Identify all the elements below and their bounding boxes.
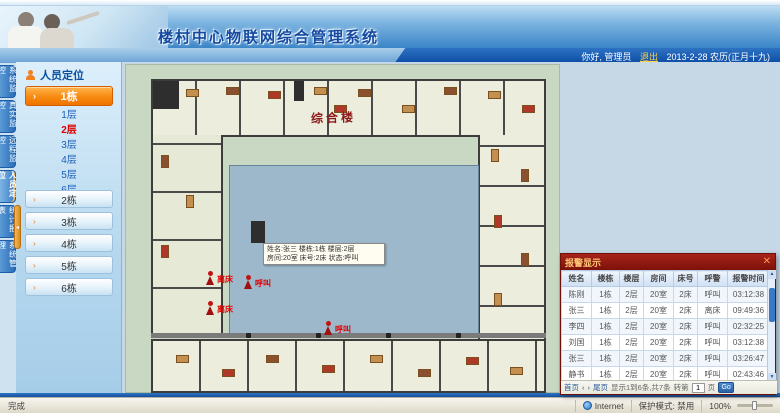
people-icon — [26, 70, 36, 80]
building-button-label: 2栋 — [61, 192, 77, 207]
building-button-1[interactable]: › 1栋 — [25, 86, 113, 106]
floor-item-2[interactable]: 2层 — [16, 123, 122, 138]
plan-building-label: 综合楼 — [311, 108, 357, 127]
sidebar-collapse-handle[interactable]: ◂ — [14, 205, 21, 249]
chevron-right-icon: › — [33, 91, 36, 101]
plan-furniture — [491, 149, 499, 162]
zoom-level: 100% — [709, 401, 731, 411]
plan-furniture — [186, 195, 194, 208]
pager-go-button[interactable]: Go — [718, 382, 734, 393]
status-text: 完成 — [0, 400, 575, 412]
zoom-slider-knob[interactable] — [752, 401, 757, 410]
pager-goto-label: 转第 — [674, 382, 689, 393]
plan-furniture — [402, 105, 415, 113]
building-button-label: 6栋 — [61, 280, 77, 295]
col-bed: 床号 — [674, 271, 698, 287]
date-text: 2013-2-28 农历(正月十九) — [666, 52, 770, 62]
plan-furniture — [176, 355, 189, 363]
alarm-popup-title: 报警显示 — [565, 256, 601, 269]
page-number-input[interactable] — [692, 383, 705, 393]
plan-stairwell — [251, 221, 265, 243]
plan-furniture — [488, 91, 501, 99]
globe-icon — [583, 401, 592, 410]
floor-item-1[interactable]: 1层 — [16, 108, 122, 123]
plan-furniture — [521, 169, 529, 182]
alarm-marker-label: 离床 — [217, 304, 233, 315]
pager-prev[interactable]: ‹ — [582, 383, 585, 392]
strip-diagonal — [0, 48, 405, 63]
pager-unit: 页 — [708, 382, 716, 393]
zoom-slider[interactable] — [737, 404, 773, 407]
chevron-right-icon: › — [33, 261, 36, 270]
popup-scrollbar[interactable]: ▲ ▼ — [767, 270, 775, 382]
plan-furniture — [322, 365, 335, 373]
plan-stairwell — [153, 81, 179, 109]
person-alarm-icon — [206, 301, 215, 315]
table-row[interactable]: 陈刚1栋2层20室2床呼叫03:12:38 — [562, 287, 770, 303]
plan-rooms-bottom — [151, 339, 546, 393]
plan-furniture — [466, 357, 479, 365]
panel-title: 人员定位 — [40, 67, 84, 83]
plan-furniture — [494, 215, 502, 228]
building-button-label: 1栋 — [60, 88, 77, 104]
app-banner: 楼村中心物联网综合管理系统 — [0, 6, 780, 48]
user-greeting: 你好, 管理员 — [581, 52, 631, 62]
plan-column — [456, 333, 461, 338]
building-button-2[interactable]: › 2栋 — [25, 190, 113, 208]
status-bar: 完成 Internet 保护模式: 禁用 100% — [0, 397, 780, 413]
building-button-6[interactable]: › 6栋 — [25, 278, 113, 296]
plan-furniture — [494, 293, 502, 306]
tab-live-monitor[interactable]: 真实监控 — [0, 100, 16, 133]
col-name: 姓名 — [562, 271, 592, 287]
building-button-3[interactable]: › 3栋 — [25, 212, 113, 230]
pager-info: 显示1到6条,共7条 — [611, 382, 671, 393]
close-icon[interactable]: ✕ — [763, 257, 771, 267]
plan-furniture — [370, 355, 383, 363]
alarm-marker-4[interactable]: 呼叫 — [324, 321, 364, 337]
pager-next[interactable]: › — [588, 383, 591, 392]
person-tooltip: 姓名:张三 楼栋:1栋 楼层:2层 房间:20室 床号:2床 状态:呼叫 — [263, 243, 385, 265]
alarm-marker-2[interactable]: 呼叫 — [244, 275, 284, 291]
protected-mode-label: 保护模式: 禁用 — [631, 400, 702, 412]
plan-column — [316, 333, 321, 338]
sidebar: 人员定位 › 1栋 1层 2层 3层 4层 5层 6层 › 2栋 › 3栋 › … — [16, 62, 122, 393]
scroll-up-icon[interactable]: ▲ — [768, 270, 776, 279]
table-row[interactable]: 张三1栋2层20室2床离床09:49:36 — [562, 303, 770, 319]
tooltip-line2: 房间:20室 床号:2床 状态:呼叫 — [267, 254, 381, 263]
alarm-marker-label: 呼叫 — [335, 324, 351, 335]
alarm-table: 姓名 楼栋 楼层 房间 床号 呼警 报警时间 陈刚1栋2层20室2床呼叫03:1… — [561, 270, 770, 383]
building-button-5[interactable]: › 5栋 — [25, 256, 113, 274]
alarm-popup-titlebar[interactable]: 报警显示 ✕ — [561, 254, 775, 270]
person-alarm-icon — [206, 271, 215, 285]
plan-furniture — [444, 87, 457, 95]
chevron-right-icon: › — [33, 217, 36, 226]
plan-furniture — [266, 355, 279, 363]
table-row[interactable]: 刘国1栋2层20室2床呼叫03:12:38 — [562, 335, 770, 351]
tab-personnel-location[interactable]: 人员定位 — [0, 170, 16, 203]
plan-furniture — [521, 253, 529, 266]
plan-wing-right — [478, 135, 546, 347]
floor-list: 1层 2层 3层 4层 5层 6层 — [16, 108, 122, 198]
pager-first[interactable]: 首页 — [564, 382, 579, 393]
floor-item-3[interactable]: 3层 — [16, 138, 122, 153]
building-button-label: 3栋 — [61, 214, 77, 229]
alarm-marker-label: 离床 — [217, 274, 233, 285]
plan-furniture — [161, 155, 169, 168]
plan-column — [386, 333, 391, 338]
zone-label: Internet — [595, 401, 624, 411]
user-strip: 你好, 管理员 退出 2013-2-28 农历(正月十九) — [0, 48, 780, 63]
tooltip-line1: 姓名:张三 楼栋:1栋 楼层:2层 — [267, 245, 381, 254]
plan-furniture — [226, 87, 239, 95]
plan-stairwell — [294, 81, 304, 101]
floorplan-canvas[interactable]: 综合楼 离床 呼叫 离床 呼叫 姓名:张三 楼栋:1栋 楼层:2层 房间:20室… — [125, 64, 560, 393]
col-alarm-time: 报警时间 — [728, 271, 770, 287]
popup-pager: 首页 ‹ › 尾页 显示1到6条,共7条 转第 页 Go — [561, 380, 777, 394]
plan-furniture — [522, 105, 535, 113]
table-row[interactable]: 张三1栋2层20室2床呼叫03:26:47 — [562, 351, 770, 367]
banner-photo — [0, 6, 168, 48]
plan-furniture — [161, 245, 169, 258]
tab-system-monitor[interactable]: 系统监控 — [0, 65, 16, 98]
app-title: 楼村中心物联网综合管理系统 — [158, 26, 379, 47]
alarm-marker-label: 呼叫 — [255, 278, 271, 289]
photo-silhouette — [8, 26, 44, 48]
logout-link[interactable]: 退出 — [640, 52, 658, 62]
col-floor: 楼层 — [620, 271, 644, 287]
plan-furniture — [418, 369, 431, 377]
building-button-4[interactable]: › 4栋 — [25, 234, 113, 252]
table-row[interactable]: 李四1栋2层20室2床呼叫02:32:25 — [562, 319, 770, 335]
chevron-right-icon: › — [33, 195, 36, 204]
plan-furniture — [268, 91, 281, 99]
floor-item-5[interactable]: 5层 — [16, 168, 122, 183]
building-button-label: 5栋 — [61, 258, 77, 273]
plan-furniture — [314, 87, 327, 95]
pager-last[interactable]: 尾页 — [593, 382, 608, 393]
alarm-table-header: 姓名 楼栋 楼层 房间 床号 呼警 报警时间 — [562, 271, 770, 287]
person-alarm-icon — [244, 275, 253, 289]
chevron-right-icon: › — [33, 283, 36, 292]
chevron-right-icon: › — [33, 239, 36, 248]
floor-item-4[interactable]: 4层 — [16, 153, 122, 168]
tab-remote-monitor[interactable]: 远程监控 — [0, 135, 16, 168]
col-room: 房间 — [644, 271, 674, 287]
person-alarm-icon — [324, 321, 333, 335]
photo-silhouette — [40, 28, 74, 48]
col-building: 楼栋 — [592, 271, 620, 287]
plan-furniture — [222, 369, 235, 377]
alarm-marker-3[interactable]: 离床 — [206, 301, 246, 317]
photo-silhouette — [66, 11, 100, 25]
alarm-popup: 报警显示 ✕ 姓名 楼栋 楼层 房间 床号 呼警 报警时间 陈刚1栋2层20室2… — [560, 253, 776, 395]
scrollbar-thumb[interactable] — [769, 288, 775, 322]
building-button-label: 4栋 — [61, 236, 77, 251]
plan-furniture — [358, 89, 371, 97]
plan-furniture — [510, 367, 523, 375]
col-alarm-type: 呼警 — [698, 271, 728, 287]
plan-column — [246, 333, 251, 338]
plan-furniture — [186, 89, 199, 97]
alarm-marker-1[interactable]: 离床 — [206, 271, 246, 287]
